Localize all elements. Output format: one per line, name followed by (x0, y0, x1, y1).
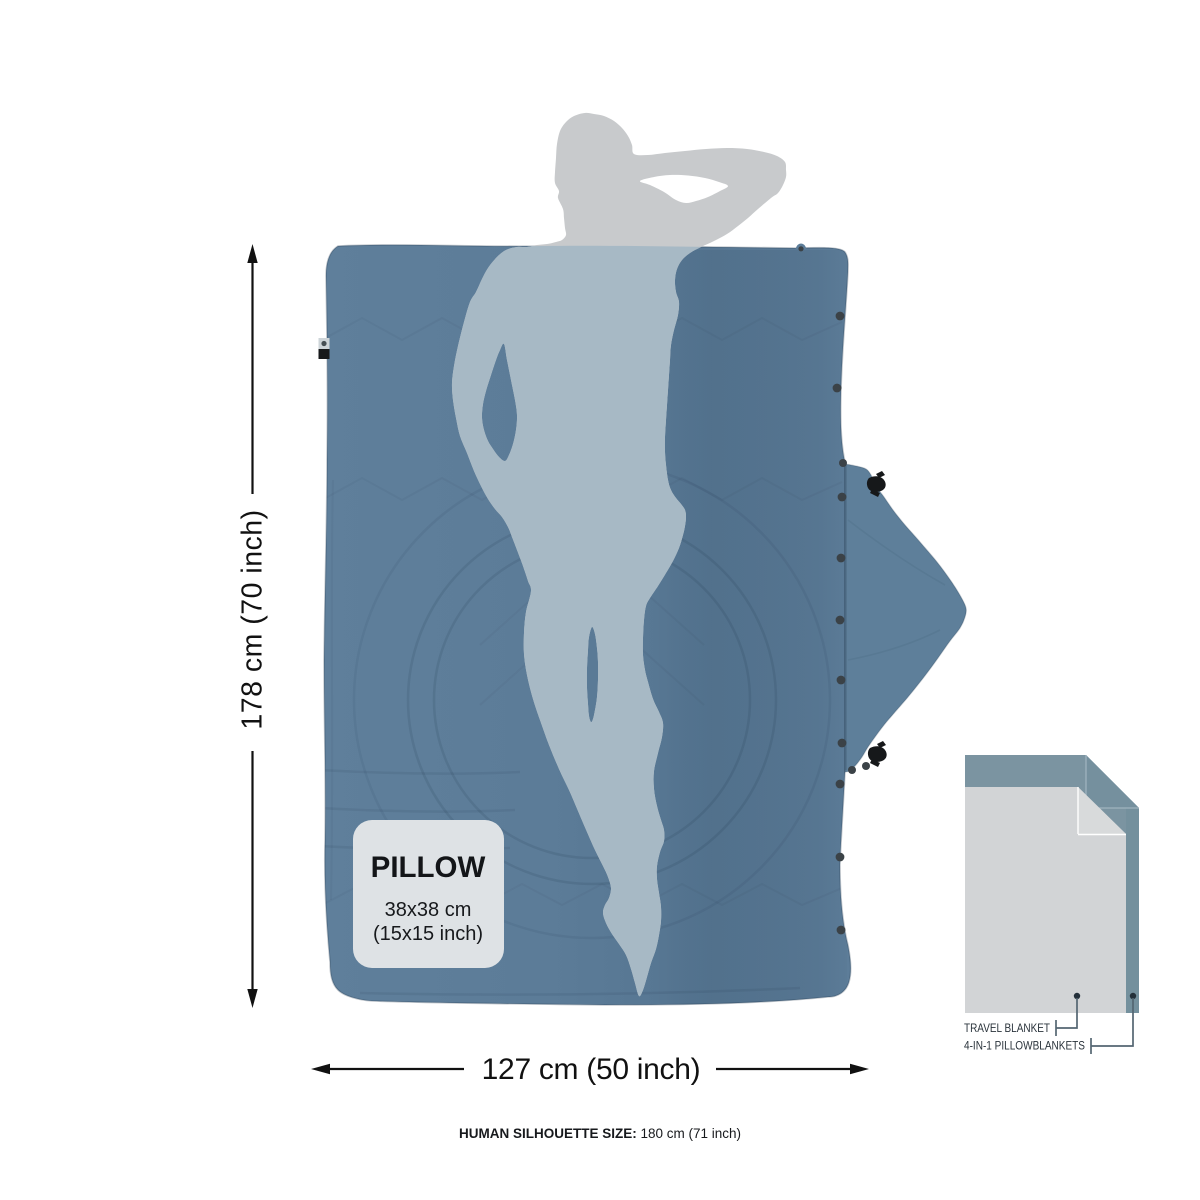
svg-text:HUMAN SILHOUETTE SIZE: 180 cm: HUMAN SILHOUETTE SIZE: 180 cm (71 inch) (459, 1126, 741, 1141)
svg-text:127 cm (50 inch): 127 cm (50 inch) (482, 1053, 701, 1086)
svg-text:PILLOW: PILLOW (371, 851, 486, 884)
svg-text:4-IN-1 PILLOWBLANKETS: 4-IN-1 PILLOWBLANKETS (964, 1039, 1085, 1053)
svg-text:TRAVEL BLANKET: TRAVEL BLANKET (964, 1021, 1051, 1035)
svg-text:(15x15 inch): (15x15 inch) (373, 923, 483, 945)
svg-text:38x38 cm: 38x38 cm (385, 899, 472, 921)
svg-text:178 cm (70 inch): 178 cm (70 inch) (237, 509, 269, 729)
